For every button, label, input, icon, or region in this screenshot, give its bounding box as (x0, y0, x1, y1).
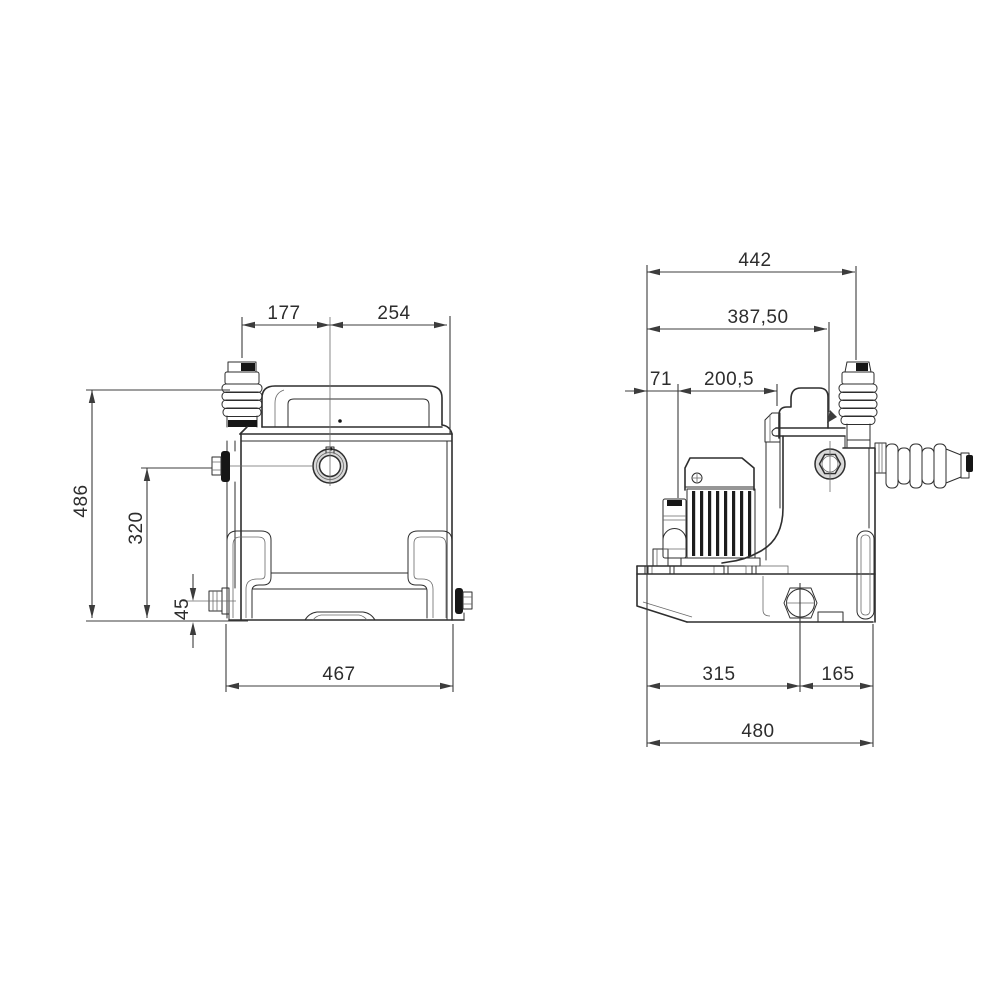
side-view: 442 387,50 71 200,5 315 (625, 250, 973, 747)
front-dimensions: 177 254 486 320 45 467 (71, 303, 453, 692)
dim-label-320: 320 (126, 511, 147, 544)
dim-label-467: 467 (322, 664, 355, 685)
vent-bellows-side (839, 362, 877, 447)
dimension-drawing: 177 254 486 320 45 467 (0, 0, 1000, 1000)
dim-label-387-50: 387,50 (727, 307, 788, 328)
dim-label-45: 45 (172, 598, 193, 620)
pump-casing (763, 442, 780, 616)
dim-label-165: 165 (821, 664, 854, 685)
base-indent (305, 612, 375, 620)
right-handle-recess (408, 531, 452, 618)
capacitor (663, 499, 686, 558)
dim-label-480: 480 (741, 721, 774, 742)
left-handle-recess (227, 531, 271, 618)
tank-lid-front (262, 386, 442, 427)
dim-label-315: 315 (702, 664, 735, 685)
discharge-bellows (875, 443, 973, 488)
dim-label-71: 71 (650, 369, 672, 390)
front-inlet-hole (230, 447, 347, 483)
dim-label-442: 442 (738, 250, 771, 271)
vent-bellows-front (222, 362, 262, 427)
front-view: 177 254 486 320 45 467 (71, 303, 472, 692)
dim-label-254: 254 (377, 303, 410, 324)
bottom-right-port (455, 588, 472, 614)
dim-label-486: 486 (71, 484, 92, 517)
dim-label-200-5: 200,5 (704, 369, 754, 390)
discharge-hex-port (815, 441, 845, 492)
motor-cap (685, 458, 754, 490)
dim-label-177: 177 (267, 303, 300, 324)
side-inlet-port (212, 451, 230, 482)
drawing-page: 177 254 486 320 45 467 (0, 0, 1000, 1000)
tank-body-front (227, 425, 464, 620)
